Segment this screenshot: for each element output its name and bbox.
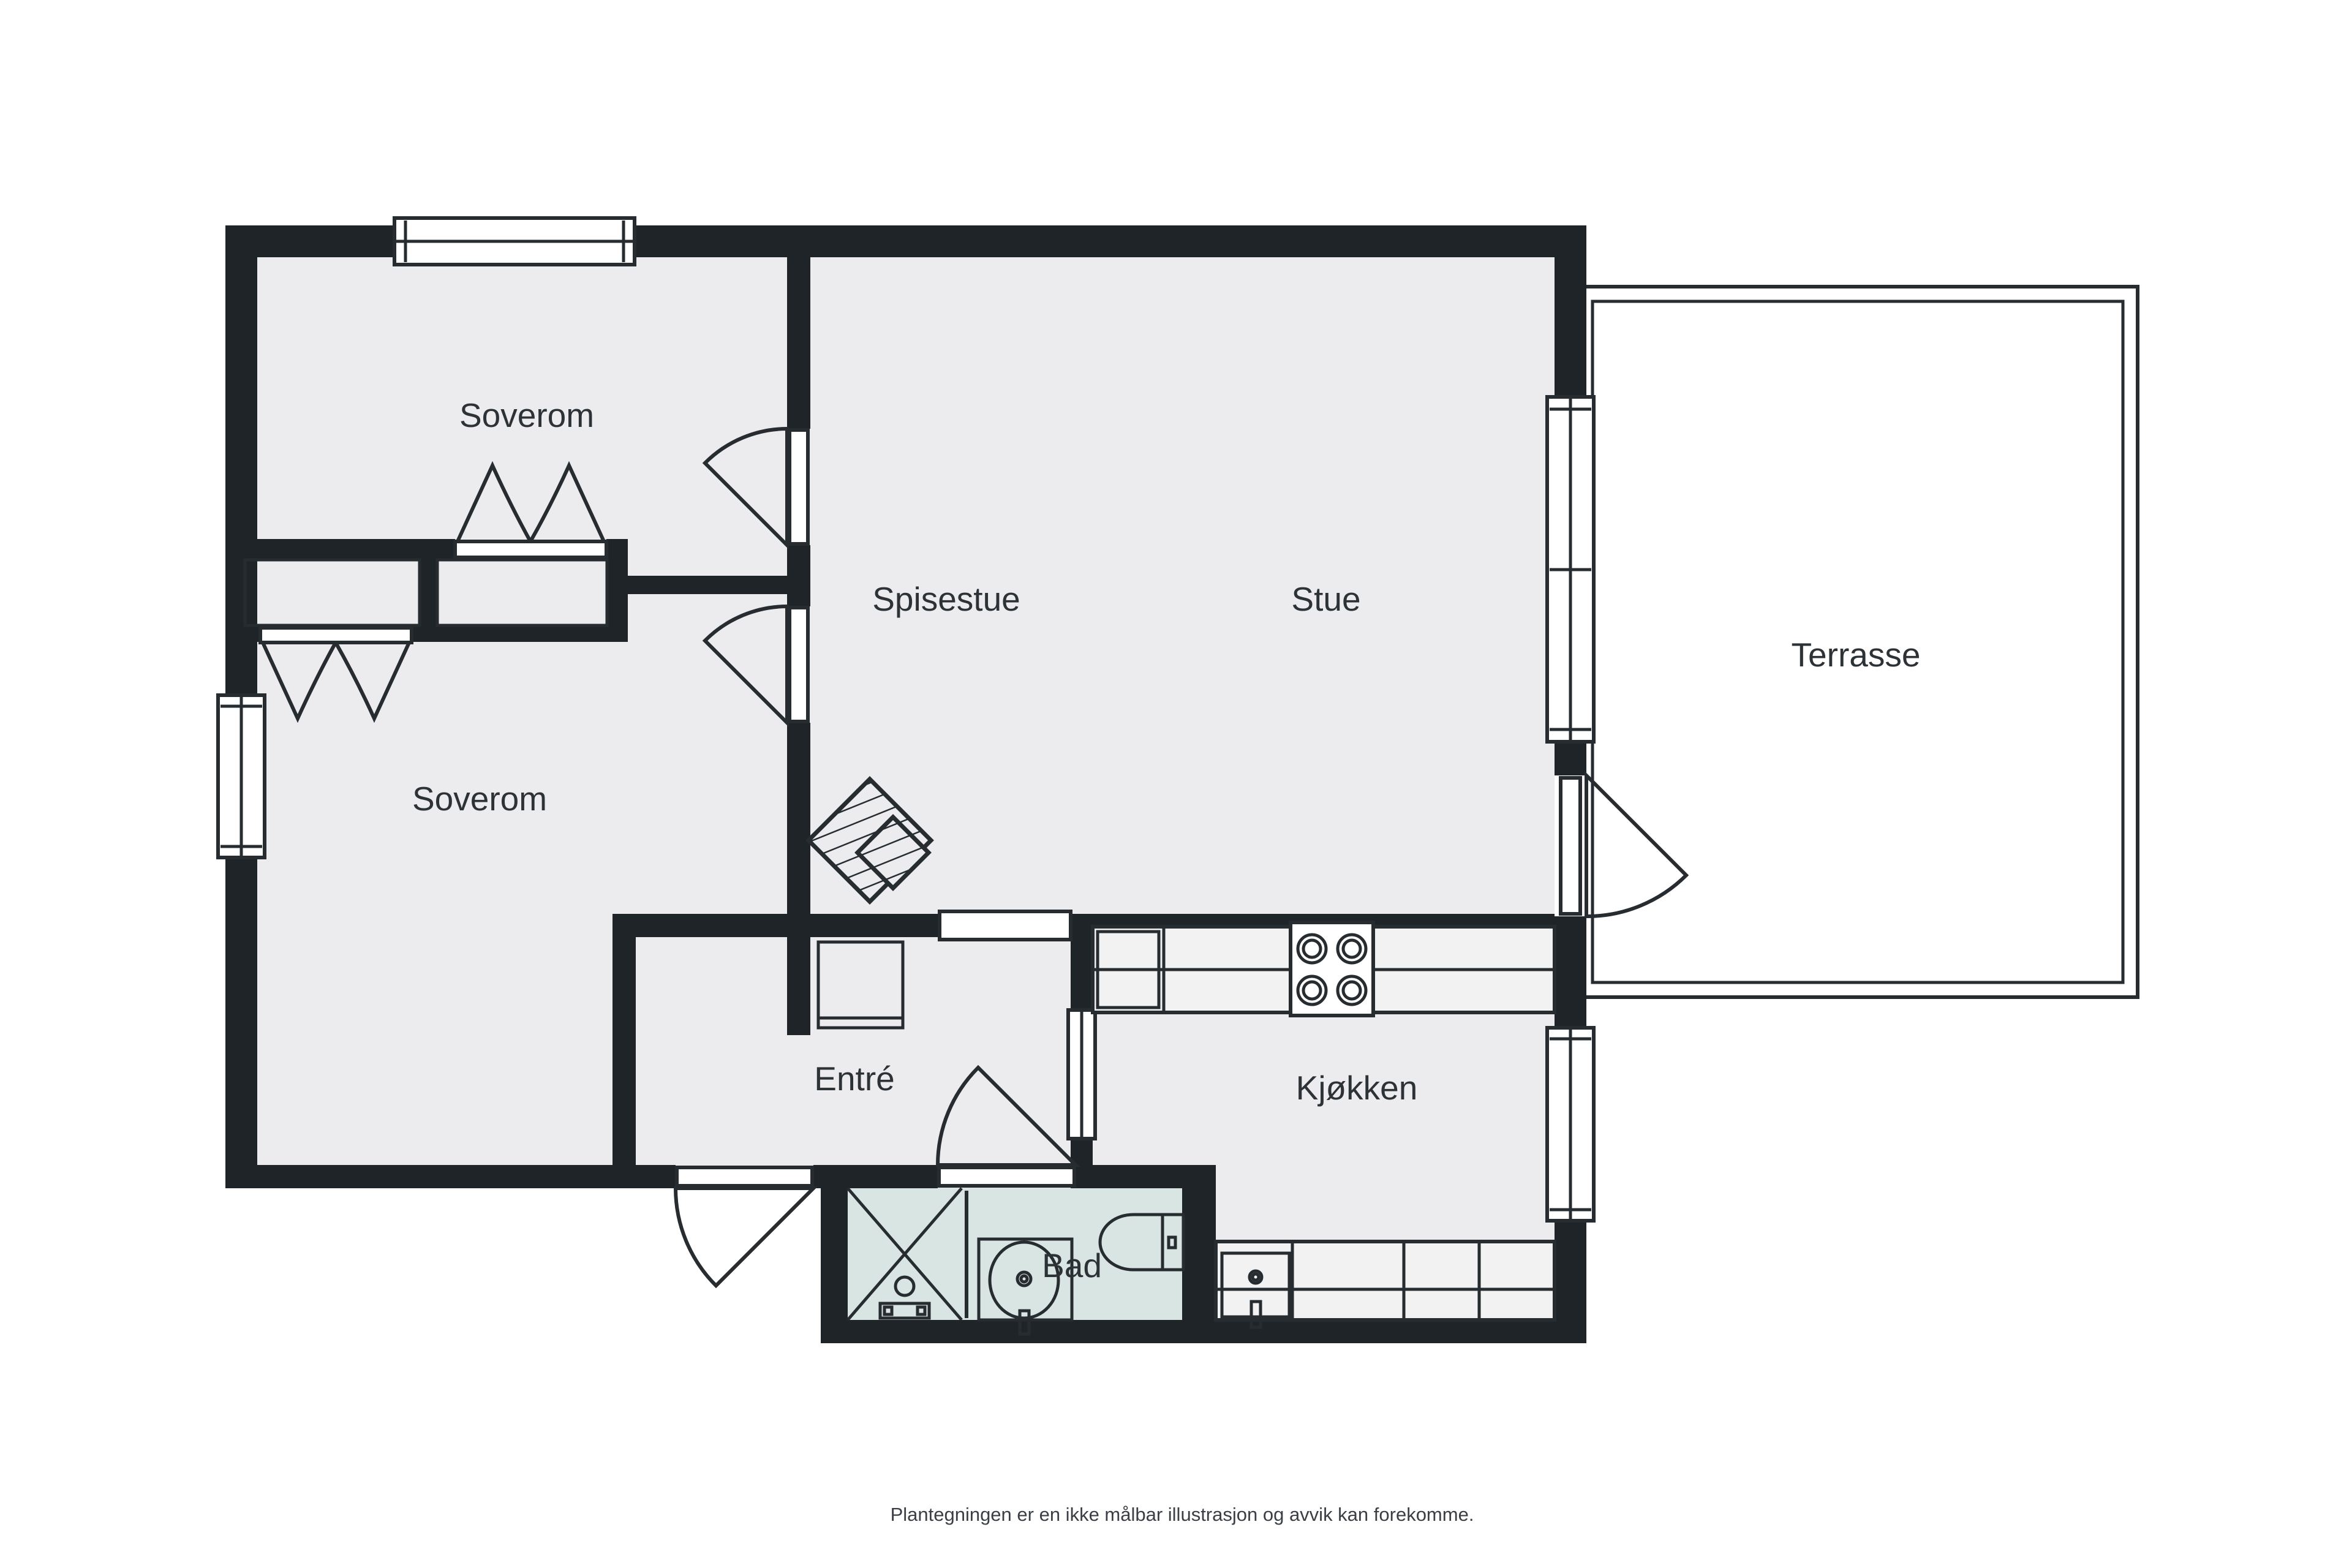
door-entrance (676, 1167, 813, 1286)
room-label-kjokken: Kjøkken (1296, 1069, 1418, 1107)
window-stue-right (1547, 397, 1594, 742)
kitchen-counter (1093, 922, 1555, 1016)
kitchen-counter-bottom (1216, 1242, 1555, 1327)
room-label-terrasse: Terrasse (1792, 636, 1921, 674)
disclaimer-text: Plantegningen er en ikke målbar illustra… (891, 1504, 1474, 1525)
room-label-entre: Entré (814, 1060, 894, 1098)
room-label-bad: Bad (1042, 1246, 1102, 1284)
floor-plan: Soverom Spisestue Stue Terrasse Soverom … (0, 0, 2352, 1568)
wall-spisestue-3 (787, 723, 810, 937)
room-label-spisestue: Spisestue (872, 580, 1020, 618)
passage-entre-kjokken (1068, 1010, 1095, 1139)
wall-nook-connector (628, 576, 787, 594)
wall-bottom-right (1076, 1165, 1216, 1188)
wall-entre-stub (787, 937, 810, 1035)
wall-bottom-mid (813, 1165, 938, 1188)
wall-kitchen-bottom (1182, 1320, 1586, 1343)
wall-bad-right (1182, 1188, 1216, 1320)
passage-entre-spisestue (940, 911, 1071, 940)
wall-closet-bottom-2 (412, 627, 628, 642)
floor-plan-page: Soverom Spisestue Stue Terrasse Soverom … (0, 0, 2352, 1568)
wall-spisestue-1 (787, 245, 810, 429)
wall-closet-bottom-1 (225, 627, 260, 642)
wall-closet-right (608, 539, 628, 642)
wall-bottom-left (225, 1165, 676, 1188)
wall-closet-divider (421, 554, 436, 631)
room-label-soverom-1: Soverom (459, 396, 594, 434)
window-kitchen-right (1547, 1028, 1594, 1221)
wall-entre-left (612, 914, 636, 1188)
room-label-soverom-2: Soverom (412, 780, 547, 818)
wall-soverom1-bottom-1 (225, 539, 455, 559)
window-soverom2-left (218, 695, 265, 858)
room-label-stue: Stue (1291, 580, 1360, 618)
wall-kitchen-left-1 (1071, 937, 1093, 1010)
window-soverom1-top (394, 218, 635, 265)
stove-icon (1291, 922, 1373, 1016)
wall-entre-top-left (612, 914, 940, 937)
wall-spisestue-2 (787, 545, 810, 606)
